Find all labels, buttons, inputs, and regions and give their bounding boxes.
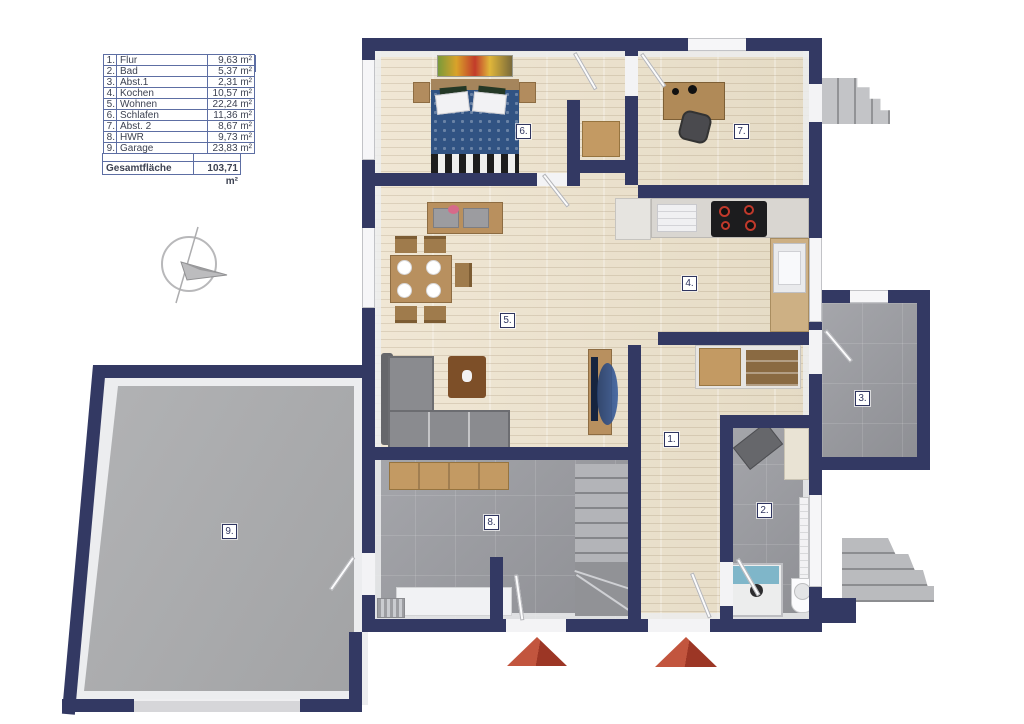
wall-segment <box>917 290 930 470</box>
cooktop-burner <box>719 206 730 217</box>
bed-pillow <box>435 91 470 115</box>
floorplan-page: 1. 2. 3. 4. 5. 6. 7. 8. 9. Kellergeschos… <box>0 0 1024 724</box>
desk-monitor <box>672 88 679 95</box>
legend-table: Kellergeschoss 1. Flur 9,63 m² 2. Bad 5,… <box>103 55 255 175</box>
wall-segment <box>362 619 822 632</box>
door-opening <box>809 330 822 374</box>
cooktop <box>711 201 767 237</box>
hwr-shelf <box>389 462 509 490</box>
kitchen-tall-cabinet <box>615 198 651 240</box>
room-badge-abst1: 3. <box>855 391 870 406</box>
wall-segment <box>362 38 822 51</box>
legend-total-area: 103,71 m² <box>193 161 241 175</box>
bed-pillow <box>472 91 507 114</box>
wall-segment <box>822 598 856 623</box>
dining-chair <box>395 236 417 253</box>
wall-segment <box>490 557 503 619</box>
wall-face <box>375 51 381 613</box>
bath-cabinet-cream <box>784 428 809 480</box>
floor-storage1 <box>822 303 917 457</box>
window <box>850 290 888 303</box>
entrance-opening <box>506 619 566 632</box>
lounge-chair <box>597 363 618 425</box>
door-opening <box>809 84 822 122</box>
kitchen-sink-basin <box>778 251 801 285</box>
cooktop-burner <box>744 205 754 215</box>
bath-radiator <box>799 497 809 583</box>
door-opening <box>720 562 733 606</box>
desk-monitor <box>688 85 697 94</box>
wall-segment <box>93 365 375 378</box>
wall-segment <box>362 447 628 460</box>
room-badge-bad: 2. <box>757 503 772 518</box>
radiator <box>377 598 405 618</box>
dining-chair <box>424 236 446 253</box>
garage-door <box>134 699 300 712</box>
plate <box>397 260 412 275</box>
legend-total-label: Gesamtfläche <box>102 161 194 175</box>
entrance-marker <box>655 637 717 667</box>
window <box>362 60 375 160</box>
window <box>809 238 822 322</box>
hall-sideboard-shelf <box>746 350 798 386</box>
nightstand <box>519 82 536 103</box>
wall-segment <box>567 100 580 186</box>
exterior-stairs-top <box>822 78 890 124</box>
wall-segment <box>658 332 809 345</box>
nightstand <box>413 82 430 103</box>
wall-segment <box>628 459 641 619</box>
entrance-opening <box>648 619 710 632</box>
window <box>688 38 746 51</box>
exterior-stairs-bottom <box>842 538 934 602</box>
room-badge-kochen: 4. <box>682 276 697 291</box>
window <box>809 495 822 587</box>
hall-sideboard-woodtop <box>699 348 741 386</box>
dining-chair <box>455 263 472 287</box>
room-badge-wohnen: 5. <box>500 313 515 328</box>
bathtub-water <box>733 566 779 584</box>
room-badge-garage: 9. <box>222 524 237 539</box>
north-arrow-icon <box>145 218 237 310</box>
room-badge-hwr: 8. <box>484 515 499 530</box>
wall-segment <box>628 345 641 459</box>
wall-segment <box>349 632 362 712</box>
legend-total-row: Gesamtfläche 103,71 m² <box>103 161 255 175</box>
room-badge-schlafen: 6. <box>516 124 531 139</box>
entrance-marker <box>507 637 567 666</box>
sofa-seat <box>388 410 510 450</box>
window <box>362 228 375 308</box>
plate <box>397 283 412 298</box>
kitchen-appliance <box>657 204 697 232</box>
dining-chair <box>424 306 446 323</box>
wall-segment <box>62 699 134 712</box>
plate <box>426 283 441 298</box>
dining-chair <box>395 306 417 323</box>
wall-segment <box>362 173 537 186</box>
flower-decor <box>448 205 459 214</box>
sofa-chaise <box>388 356 434 416</box>
room-badge-abst2: 7. <box>734 124 749 139</box>
wall-segment <box>720 415 822 428</box>
sideboard-panel <box>463 208 489 228</box>
door-opening <box>625 56 638 96</box>
cooktop-burner <box>745 220 756 231</box>
wall-painting <box>437 55 513 77</box>
wall-segment <box>822 457 930 470</box>
hall-cabinet <box>582 121 620 157</box>
cooktop-burner <box>721 221 730 230</box>
wall-segment <box>638 185 809 198</box>
door-opening <box>362 553 375 595</box>
plate <box>426 260 441 275</box>
room-badge-flur: 1. <box>664 432 679 447</box>
coffee-table-decor <box>462 370 472 382</box>
